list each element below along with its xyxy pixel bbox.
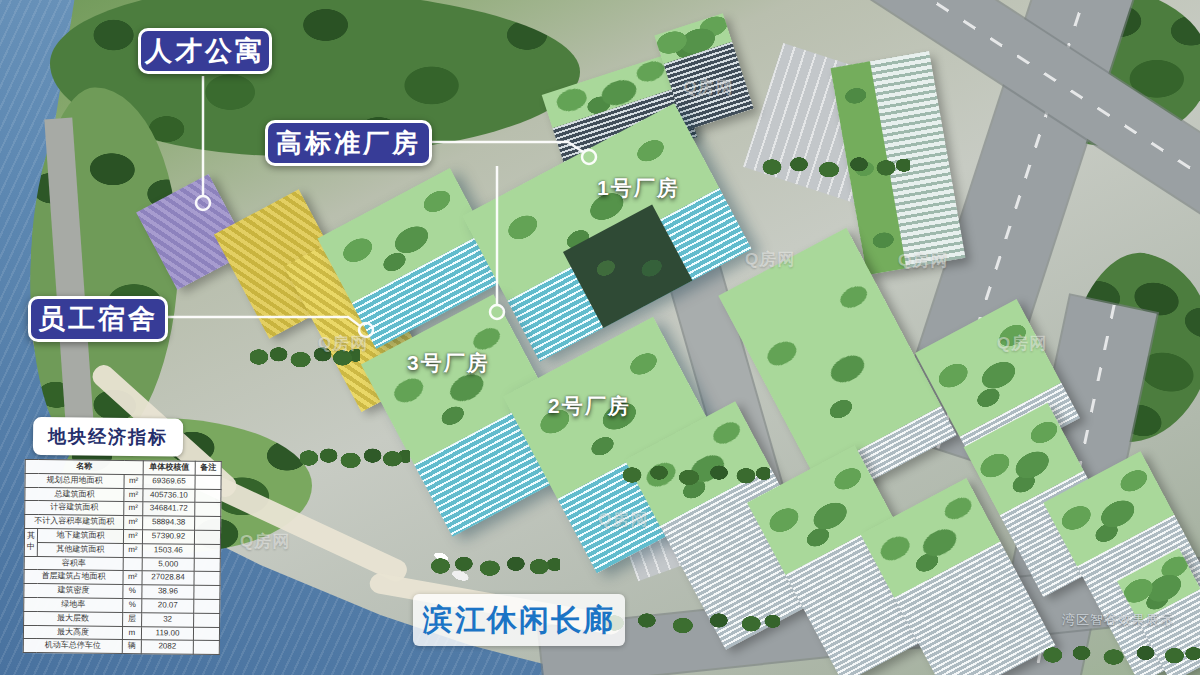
street-trees: [430, 548, 560, 584]
name-cell: 最大层数: [24, 611, 123, 626]
watermark: Q房网: [318, 332, 368, 355]
name-cell: 机动车总停车位: [23, 639, 122, 654]
name-cell: 绿地率: [24, 597, 123, 612]
watermark: Q房网: [240, 530, 290, 553]
unit-cell: [123, 557, 142, 571]
aerial-rendering: 人才公寓 高标准厂房 员工宿舍 1号厂房 3号厂房 2号厂房 滨江休闲长廊 地块…: [0, 0, 1200, 675]
remark-cell: [195, 503, 221, 517]
unit-cell: m²: [124, 488, 143, 502]
watermark: Q房网: [898, 249, 948, 272]
value-cell: 20.07: [142, 599, 194, 613]
name-cell: 首层建筑占地面积: [24, 570, 123, 585]
table-row: 机动车总停车位辆2082: [23, 639, 219, 655]
remark-cell: [195, 516, 221, 530]
remark-cell: [194, 572, 220, 586]
unit-cell: m²: [123, 543, 142, 557]
street-trees: [760, 145, 910, 189]
remark-cell: [193, 641, 219, 655]
street-trees: [600, 602, 780, 644]
street-trees: [1040, 638, 1200, 672]
unit-cell: m²: [124, 502, 143, 516]
remark-cell: [193, 627, 219, 641]
scene-caption: 湾区智谷效果展示: [1062, 611, 1174, 629]
economic-indicators-title: 地块经济指标: [33, 417, 183, 457]
label-staff-dormitory: 员工宿舍: [28, 296, 168, 342]
header-name: 名称: [25, 459, 143, 474]
value-cell: 1503.46: [142, 543, 194, 557]
name-cell: 规划总用地面积: [25, 473, 124, 488]
label-factory-1: 1号厂房: [597, 174, 680, 202]
name-cell: 其他建筑面积: [37, 542, 123, 557]
name-cell: 最大高度: [23, 625, 122, 640]
remark-cell: [194, 530, 220, 544]
label-factory-2: 2号厂房: [548, 392, 631, 420]
label-riverside-corridor: 滨江休闲长廊: [413, 594, 625, 646]
value-cell: 38.96: [142, 585, 194, 599]
remark-cell: [194, 613, 220, 627]
unit-cell: 层: [123, 612, 142, 626]
unit-cell: m²: [123, 571, 142, 585]
label-factory-3: 3号厂房: [407, 349, 490, 377]
remark-cell: [194, 585, 220, 599]
street-trees: [620, 455, 770, 495]
remark-cell: [195, 475, 221, 489]
name-cell: 地下建筑面积: [37, 529, 123, 544]
name-cell: 容积率: [24, 556, 123, 571]
value-cell: 405736.10: [143, 488, 195, 502]
name-cell: 建筑密度: [24, 584, 123, 599]
remark-cell: [194, 544, 220, 558]
value-cell: 2082: [141, 640, 193, 654]
value-cell: 57390.92: [142, 530, 194, 544]
economic-indicators-card: 地块经济指标 名称 单体校核值 备注 规划总用地面积m²69369.65总建筑面…: [23, 417, 229, 655]
header-value: 单体校核值: [143, 461, 195, 475]
watermark: Q房网: [745, 248, 795, 271]
economic-indicators-table-body: 规划总用地面积m²69369.65总建筑面积m²405736.10计容建筑面积m…: [23, 473, 221, 654]
label-high-standard-factory: 高标准厂房: [265, 120, 432, 166]
remark-cell: [194, 599, 220, 613]
value-cell: 5.000: [142, 557, 194, 571]
unit-cell: m²: [123, 529, 142, 543]
group-cell: 其中: [24, 528, 37, 556]
unit-cell: %: [123, 585, 142, 599]
value-cell: 27028.84: [142, 571, 194, 585]
header-remark: 备注: [195, 461, 221, 475]
watermark: Q房网: [598, 508, 648, 531]
name-cell: 计容建筑面积: [25, 501, 124, 516]
label-talent-apartment: 人才公寓: [138, 28, 272, 74]
remark-cell: [194, 558, 220, 572]
value-cell: 32: [142, 612, 194, 626]
value-cell: 119.00: [141, 626, 193, 640]
value-cell: 58894.38: [143, 516, 195, 530]
value-cell: 346841.72: [143, 502, 195, 516]
name-cell: 总建筑面积: [25, 487, 124, 502]
unit-cell: %: [123, 598, 142, 612]
economic-indicators-table: 名称 单体校核值 备注 规划总用地面积m²69369.65总建筑面积m²4057…: [23, 459, 222, 655]
unit-cell: m: [122, 626, 141, 640]
unit-cell: m²: [124, 516, 143, 530]
name-cell: 不计入容积率建筑面积: [25, 515, 124, 530]
watermark: Q房网: [683, 76, 733, 99]
street-trees: [300, 438, 410, 478]
unit-cell: 辆: [122, 640, 141, 654]
remark-cell: [195, 489, 221, 503]
watermark: Q房网: [997, 332, 1047, 355]
unit-cell: m²: [124, 474, 143, 488]
value-cell: 69369.65: [143, 474, 195, 488]
